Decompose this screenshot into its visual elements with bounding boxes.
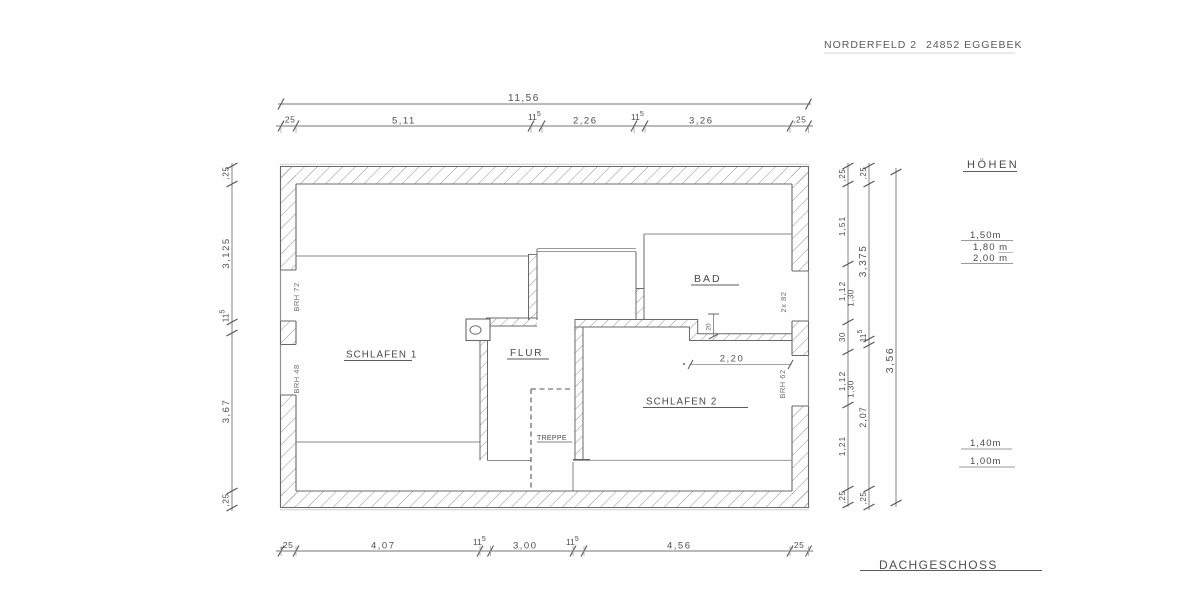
svg-text:NORDERFELD 2: NORDERFELD 2 (824, 39, 917, 51)
svg-text:1,21: 1,21 (837, 436, 847, 457)
svg-text:3,375: 3,375 (858, 245, 869, 278)
svg-text:DACHGESCHOSS: DACHGESCHOSS (879, 558, 998, 572)
svg-text:3,125: 3,125 (221, 237, 232, 268)
svg-text:30: 30 (838, 332, 847, 342)
svg-text:SCHLAFEN 1: SCHLAFEN 1 (346, 350, 417, 361)
svg-text:BAD: BAD (694, 273, 722, 285)
svg-text:,25: ,25 (859, 167, 868, 180)
svg-text:4,07: 4,07 (371, 541, 396, 552)
svg-text:HÖHEN: HÖHEN (967, 159, 1019, 171)
svg-text:2,26: 2,26 (573, 116, 598, 127)
svg-text:4,56: 4,56 (667, 541, 692, 552)
svg-text:3,26: 3,26 (689, 116, 714, 127)
svg-text:11,56: 11,56 (508, 93, 540, 104)
svg-text:2x 82: 2x 82 (779, 292, 788, 313)
svg-text:,25: ,25 (282, 115, 295, 125)
svg-text:1,51: 1,51 (837, 216, 847, 237)
svg-text:1,12: 1,12 (837, 371, 847, 392)
svg-text:1,30: 1,30 (847, 380, 856, 398)
svg-text:SCHLAFEN 2: SCHLAFEN 2 (646, 397, 717, 408)
svg-text:1,40m: 1,40m (970, 438, 1001, 449)
svg-text:TREPPE: TREPPE (537, 435, 567, 442)
svg-text:2,20: 2,20 (720, 354, 745, 365)
svg-text:,25: ,25 (791, 540, 804, 550)
svg-text:1,12: 1,12 (837, 281, 847, 302)
svg-text:1,80 m: 1,80 m (973, 242, 1008, 253)
svg-text:2,07: 2,07 (858, 406, 868, 428)
svg-text:,25: ,25 (793, 115, 806, 125)
svg-text:,25: ,25 (838, 169, 847, 182)
svg-text:BRH 72: BRH 72 (292, 282, 301, 311)
svg-text:3,00: 3,00 (513, 541, 538, 552)
svg-text:1,00m: 1,00m (970, 456, 1001, 467)
svg-text:3,56: 3,56 (884, 347, 896, 373)
svg-text:,25: ,25 (221, 493, 231, 506)
svg-text:24852 EGGEBEK: 24852 EGGEBEK (926, 39, 1022, 51)
svg-text:1,30: 1,30 (847, 289, 856, 307)
svg-text:1,50m: 1,50m (970, 230, 1001, 241)
svg-text:,25: ,25 (221, 166, 231, 179)
svg-text:BRH 62: BRH 62 (778, 369, 787, 398)
svg-text:,25: ,25 (280, 540, 293, 550)
svg-text:3,67: 3,67 (221, 399, 232, 424)
svg-text:5,11: 5,11 (392, 116, 416, 127)
svg-text:20: 20 (706, 323, 713, 331)
svg-text:FLUR: FLUR (510, 348, 543, 359)
svg-text:,25: ,25 (838, 491, 847, 504)
svg-text:2,00 m: 2,00 m (973, 253, 1008, 264)
svg-text:BRH 48: BRH 48 (292, 364, 301, 393)
svg-text:,25: ,25 (859, 492, 868, 505)
